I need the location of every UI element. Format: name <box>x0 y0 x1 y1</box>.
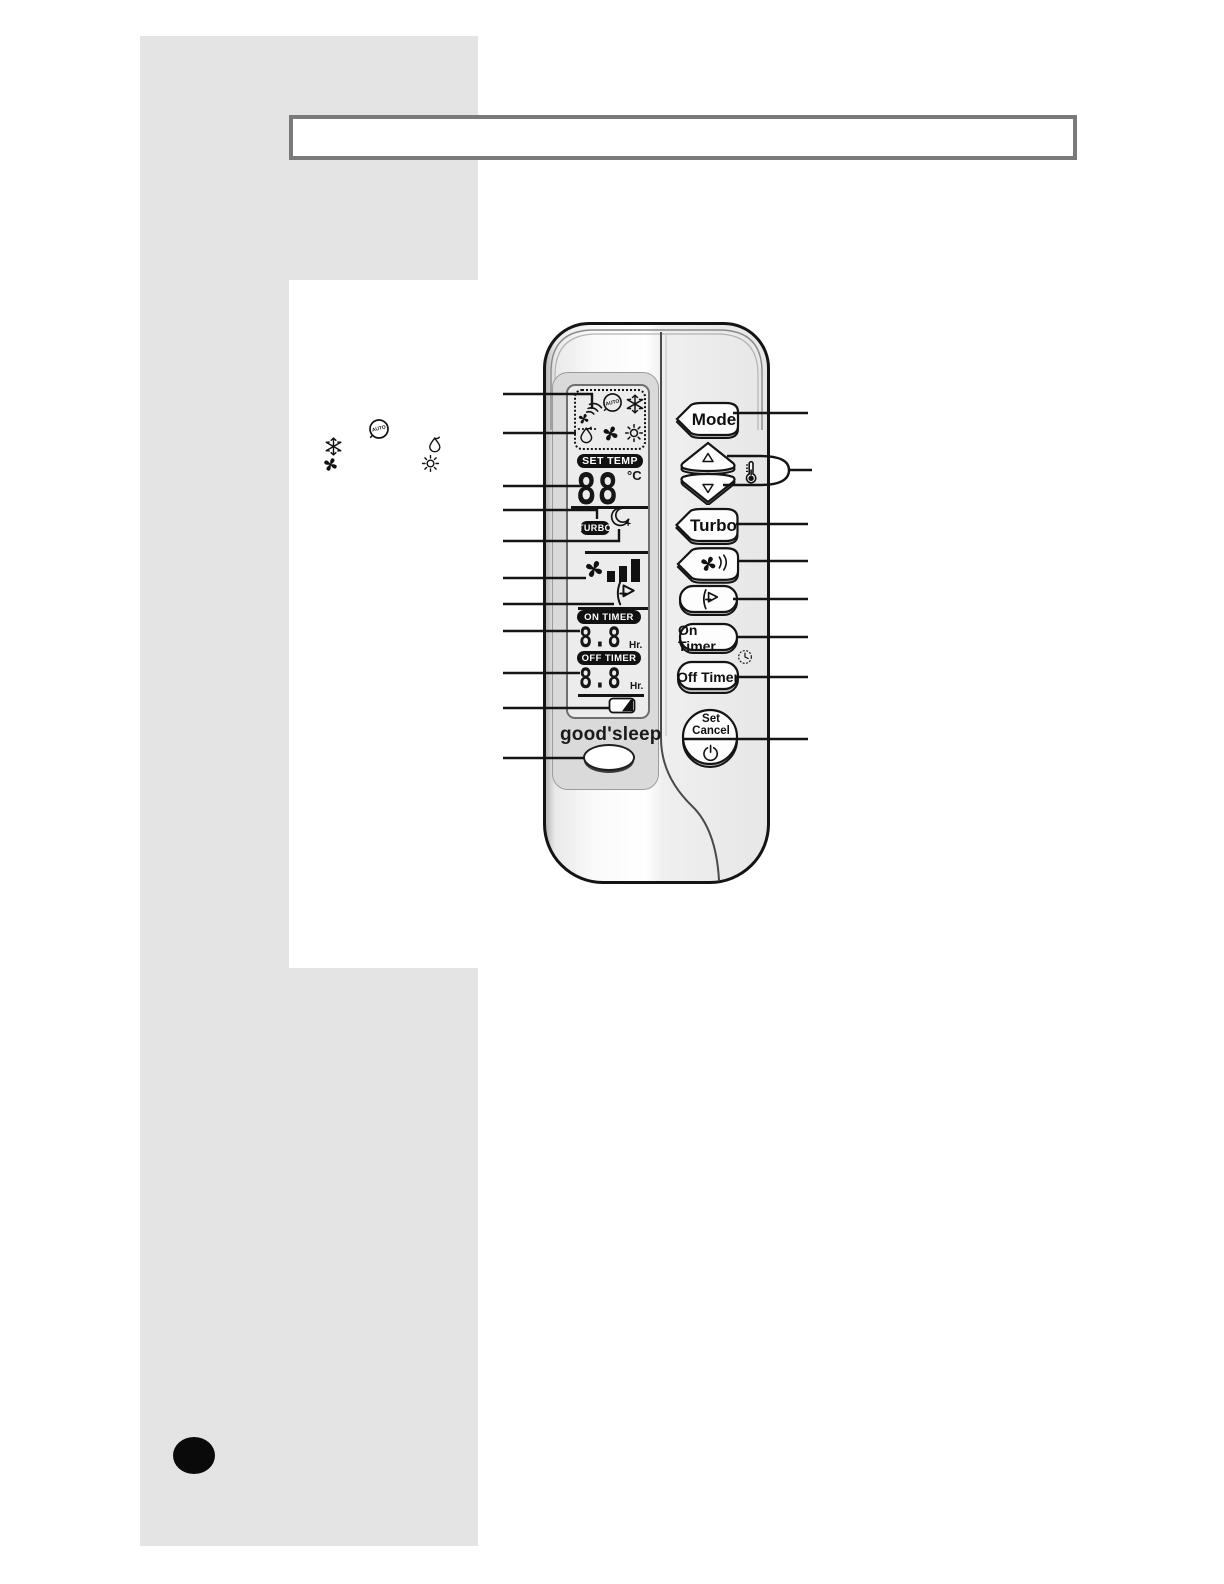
temp-up-button[interactable] <box>677 440 739 474</box>
goodsleep-label: good'sleep <box>560 724 658 746</box>
off-timer-value: 8.8 <box>579 666 622 694</box>
cool-mode-indicator-icon <box>625 394 645 414</box>
air-swing-button[interactable] <box>678 583 739 617</box>
legend-fan-mode-icon <box>321 455 340 474</box>
turbo-button[interactable]: Turbo <box>674 506 741 546</box>
goodsleep-moon-icon <box>610 505 632 529</box>
goodsleep-button[interactable] <box>583 744 635 771</box>
on-timer-unit: Hr. <box>629 640 642 651</box>
legend-cool-mode-icon <box>324 437 343 456</box>
manual-page: AUTO AUTO SET TEMP 88 °C TURBO <box>0 0 1224 1584</box>
set-cancel-power-button[interactable]: Set Cancel <box>681 706 741 772</box>
auto-mode-indicator-icon: AUTO <box>602 392 623 413</box>
mode-button[interactable]: Mode <box>675 400 741 440</box>
on-timer-button[interactable]: On Timer <box>678 621 739 655</box>
fan-mode-indicator-icon <box>600 423 621 444</box>
section-title-bar <box>289 115 1077 160</box>
content-inset-panel <box>289 280 478 968</box>
on-timer-value: 8.8 <box>579 625 622 653</box>
fan-speed-button[interactable] <box>676 545 741 585</box>
turbo-indicator-badge: TURBO <box>580 521 610 535</box>
display-divider-2 <box>585 551 648 554</box>
battery-indicator-icon <box>608 697 636 714</box>
legend-heat-mode-icon <box>421 454 440 473</box>
heat-mode-indicator-icon <box>624 422 644 444</box>
temp-down-button[interactable] <box>677 471 739 505</box>
thermometer-icon <box>738 458 762 486</box>
temperature-unit: °C <box>627 468 642 483</box>
off-timer-unit: Hr. <box>630 681 643 692</box>
fan-speed-fan-icon <box>582 557 606 581</box>
legend-auto-mode-icon: AUTO <box>368 418 390 440</box>
air-swing-indicator-icon <box>611 580 637 606</box>
off-timer-button[interactable]: Off Timer <box>676 659 740 695</box>
dry-mode-indicator-icon <box>577 424 596 447</box>
page-number-dot <box>173 1437 215 1474</box>
legend-dry-mode-icon <box>426 435 444 455</box>
